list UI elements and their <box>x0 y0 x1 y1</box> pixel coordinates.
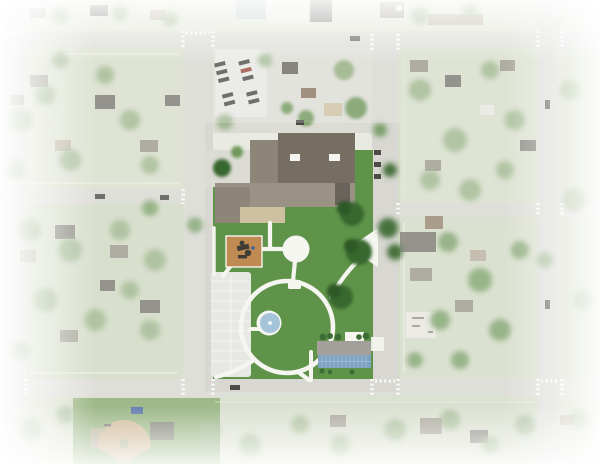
tree <box>213 159 231 177</box>
aerial-map <box>0 0 600 464</box>
tree <box>327 284 341 298</box>
building-main-block <box>278 133 355 183</box>
shrub <box>363 333 370 340</box>
parked-car <box>374 150 381 155</box>
playground <box>226 236 262 267</box>
solar-building-east-pad <box>371 337 384 351</box>
building-courtyard <box>240 207 285 223</box>
solar-building-roof <box>317 341 371 355</box>
vignette-bottom <box>0 406 600 464</box>
rooftop-unit <box>290 154 300 161</box>
play-structure <box>240 241 245 246</box>
shrub <box>356 334 362 340</box>
splash-pad-fountain <box>268 321 272 325</box>
tree <box>373 123 387 137</box>
car <box>230 385 240 390</box>
shrub <box>320 334 327 341</box>
play-structure-slide <box>251 246 255 250</box>
shrub <box>328 370 332 374</box>
path-node <box>288 280 301 289</box>
rooftop-unit <box>329 154 340 161</box>
building-left-block <box>250 140 278 183</box>
tree <box>344 239 358 253</box>
splash-pad <box>257 311 282 336</box>
shrub <box>335 334 342 341</box>
aerial-map-canvas <box>0 0 600 464</box>
vignette-left <box>0 0 95 464</box>
central-park <box>205 133 384 380</box>
play-structure <box>238 255 247 258</box>
parked-car <box>374 162 381 167</box>
tree <box>337 201 351 215</box>
tree <box>378 218 398 238</box>
tree <box>383 163 397 177</box>
park-parking-lot <box>211 272 251 377</box>
shrub <box>327 333 333 339</box>
vignette-top <box>0 0 600 62</box>
shrub <box>350 370 355 375</box>
playground-surface <box>226 236 262 267</box>
central-plaza <box>283 236 310 263</box>
vignette-right <box>505 0 600 464</box>
tree <box>231 146 243 158</box>
parked-car <box>374 174 381 179</box>
plaza-to-loop-path <box>293 261 295 281</box>
shrub <box>319 368 324 373</box>
